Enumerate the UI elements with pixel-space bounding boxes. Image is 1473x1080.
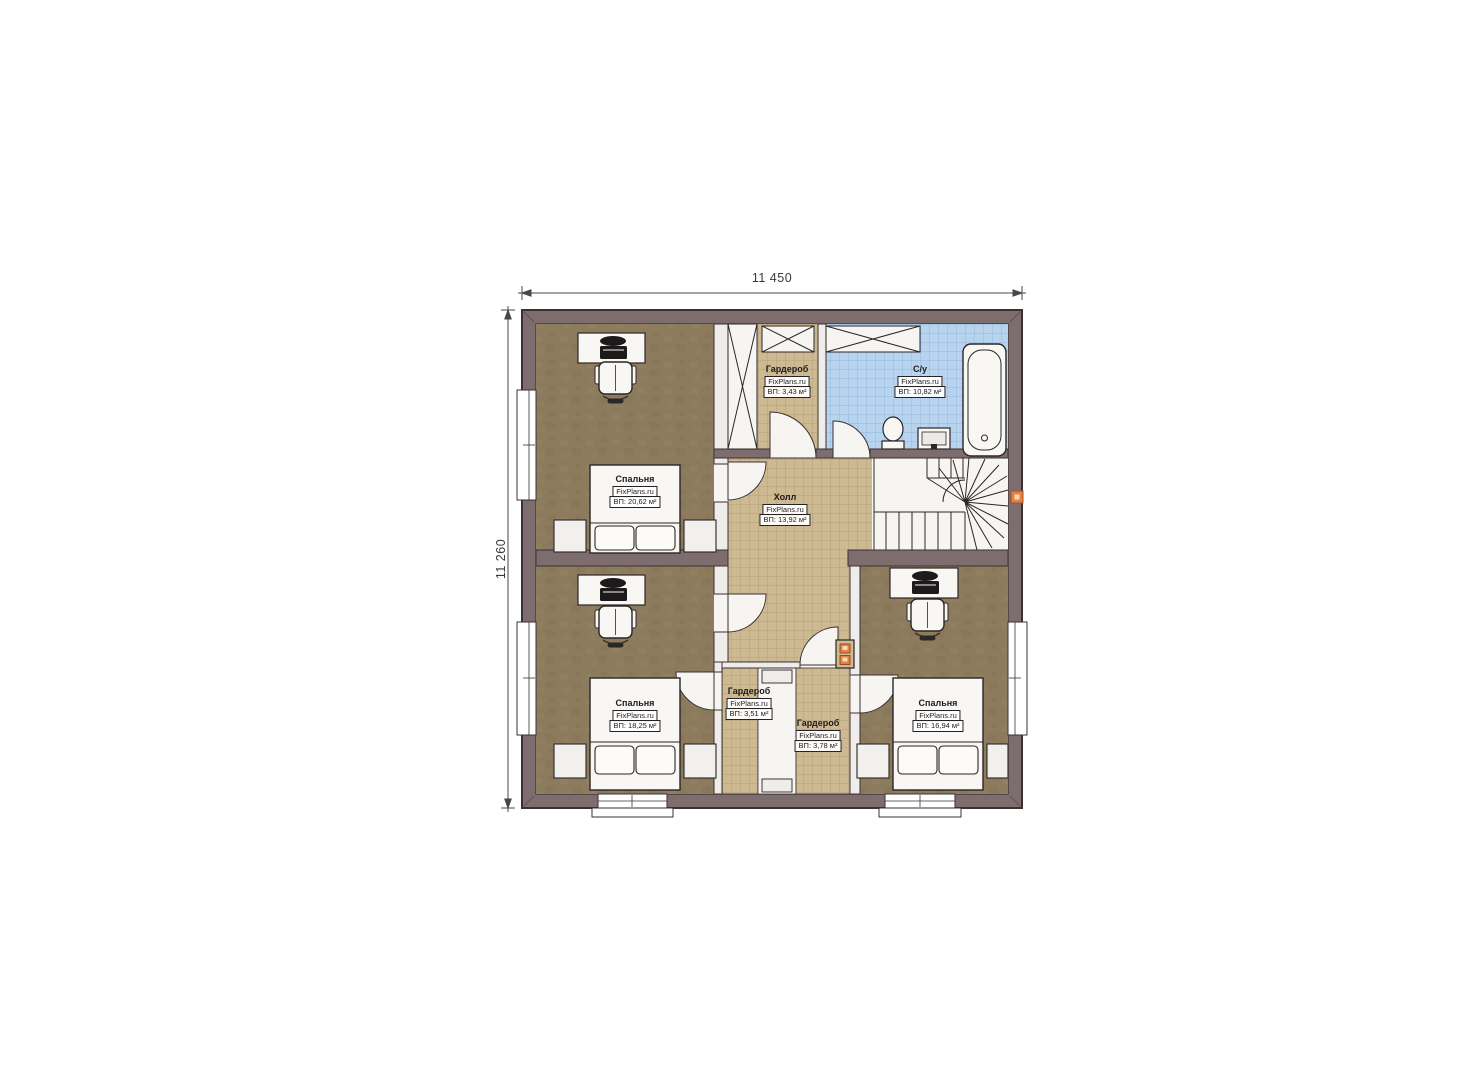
- nightstand: [554, 520, 586, 552]
- room-name: Спальня: [616, 698, 655, 708]
- sink-icon: [918, 428, 950, 449]
- room-label-hall: Холл FixPlans.ru ВП: 13,92 м²: [759, 492, 810, 526]
- dimension-line-left: [501, 306, 515, 812]
- window-bottom-right: [879, 794, 961, 817]
- room-area: ВП: 13,92 м²: [759, 514, 810, 526]
- room-area: ВП: 18,25 м²: [609, 720, 660, 732]
- floor-plan-drawing: [480, 280, 1040, 825]
- nightstand: [857, 744, 889, 778]
- window-left-top: [517, 390, 536, 500]
- room-name: Гардероб: [728, 686, 771, 696]
- window-left-bottom: [517, 622, 536, 735]
- room-name: Спальня: [919, 698, 958, 708]
- desk-icon-bottom-right: [890, 568, 958, 598]
- nightstand: [684, 744, 716, 778]
- nightstand: [554, 744, 586, 778]
- bathtub-icon: [963, 344, 1006, 456]
- room-label-bedroom-top-left: Спальня FixPlans.ru ВП: 20,62 м²: [609, 474, 660, 508]
- vent-marker-icon: [1011, 491, 1023, 503]
- desk-icon-bottom-left: [578, 575, 645, 605]
- nightstand: [684, 520, 716, 552]
- room-name: Гардероб: [766, 364, 809, 374]
- room-name: Холл: [774, 492, 797, 502]
- room-area: ВП: 20,62 м²: [609, 496, 660, 508]
- room-area: ВП: 3,43 м²: [764, 386, 811, 398]
- room-area: ВП: 3,51 м²: [726, 708, 773, 720]
- window-bottom-left: [592, 794, 673, 817]
- toilet-icon: [882, 417, 904, 449]
- chimney-icon: [836, 640, 854, 668]
- room-area: ВП: 3,78 м²: [795, 740, 842, 752]
- room-label-wardrobe-bottom-right: Гардероб FixPlans.ru ВП: 3,78 м²: [795, 718, 842, 752]
- room-area: ВП: 10,82 м²: [894, 386, 945, 398]
- room-label-wardrobe-bottom-left: Гардероб FixPlans.ru ВП: 3,51 м²: [726, 686, 773, 720]
- desk-icon-top-left: [578, 333, 645, 363]
- room-area: ВП: 16,94 м²: [912, 720, 963, 732]
- room-label-bathroom: С/у FixPlans.ru ВП: 10,82 м²: [894, 364, 945, 398]
- room-name: Спальня: [616, 474, 655, 484]
- room-label-wardrobe-top: Гардероб FixPlans.ru ВП: 3,43 м²: [764, 364, 811, 398]
- nightstand: [987, 744, 1008, 778]
- window-right: [1008, 622, 1027, 735]
- room-name: С/у: [913, 364, 927, 374]
- room-label-bedroom-bottom-right: Спальня FixPlans.ru ВП: 16,94 м²: [912, 698, 963, 732]
- room-name: Гардероб: [797, 718, 840, 728]
- dimension-line-top: [518, 286, 1026, 300]
- room-label-bedroom-bottom-left: Спальня FixPlans.ru ВП: 18,25 м²: [609, 698, 660, 732]
- floor-plan-page: 11 450 11 260: [0, 0, 1473, 1080]
